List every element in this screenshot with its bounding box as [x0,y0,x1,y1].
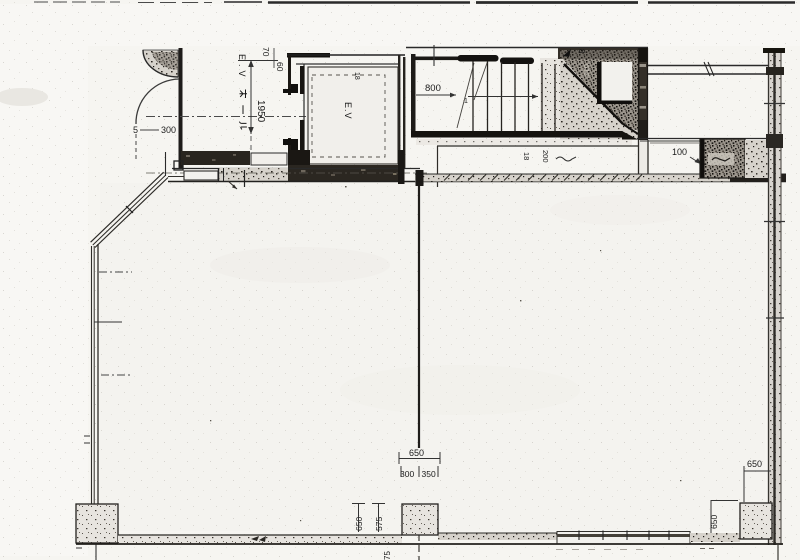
svg-text:610: 610 [582,64,591,77]
svg-text:650: 650 [409,448,424,458]
svg-text:200: 200 [541,150,550,163]
svg-text:350: 350 [422,469,436,479]
svg-text:18: 18 [522,152,531,160]
svg-text:300: 300 [161,125,176,135]
svg-text:300: 300 [400,469,414,479]
svg-text:8: 8 [577,49,586,54]
svg-text:5: 5 [133,125,138,135]
svg-text:100: 100 [672,147,687,157]
svg-text:60: 60 [275,62,285,72]
svg-text:18: 18 [353,72,360,80]
svg-text:70: 70 [261,47,271,57]
svg-text:800: 800 [425,83,441,94]
svg-text:75: 75 [383,551,392,560]
svg-text:E.V: E.V [343,102,353,120]
svg-text:1950: 1950 [255,100,266,123]
svg-text:650: 650 [747,459,762,469]
svg-text:E.V: E.V [237,54,247,81]
